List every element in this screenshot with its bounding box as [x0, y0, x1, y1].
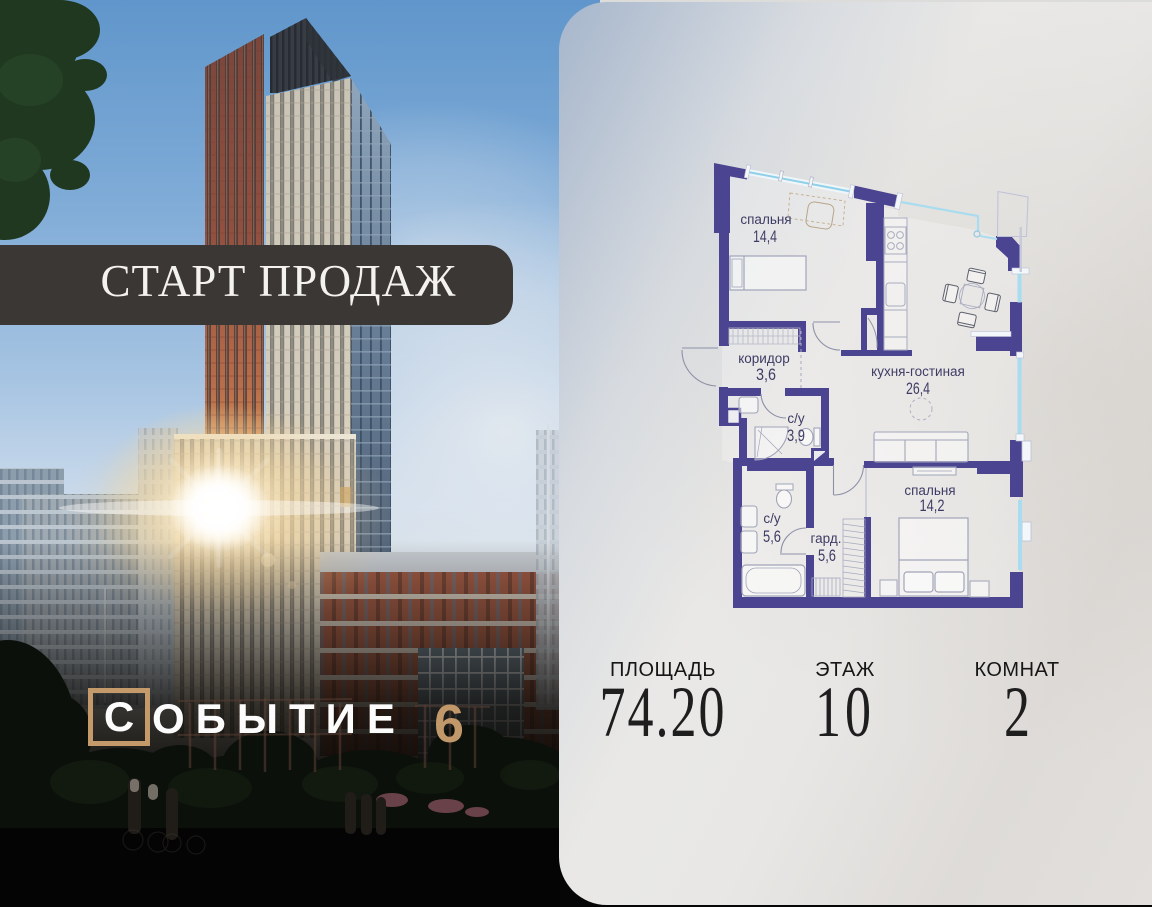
- svg-text:26,4: 26,4: [906, 379, 930, 398]
- svg-text:5,6: 5,6: [763, 527, 781, 546]
- svg-text:3,6: 3,6: [756, 365, 776, 384]
- svg-text:3,9: 3,9: [787, 426, 805, 445]
- svg-text:5,6: 5,6: [818, 546, 836, 565]
- svg-text:гард.: гард.: [811, 531, 842, 546]
- svg-text:спальня: спальня: [740, 212, 791, 227]
- svg-text:кухня-гостиная: кухня-гостиная: [871, 364, 965, 379]
- svg-text:коридор: коридор: [738, 351, 790, 366]
- svg-text:с/у: с/у: [763, 511, 781, 526]
- svg-text:с/у: с/у: [787, 411, 805, 426]
- svg-text:14,4: 14,4: [753, 227, 777, 246]
- svg-text:14,2: 14,2: [920, 496, 945, 515]
